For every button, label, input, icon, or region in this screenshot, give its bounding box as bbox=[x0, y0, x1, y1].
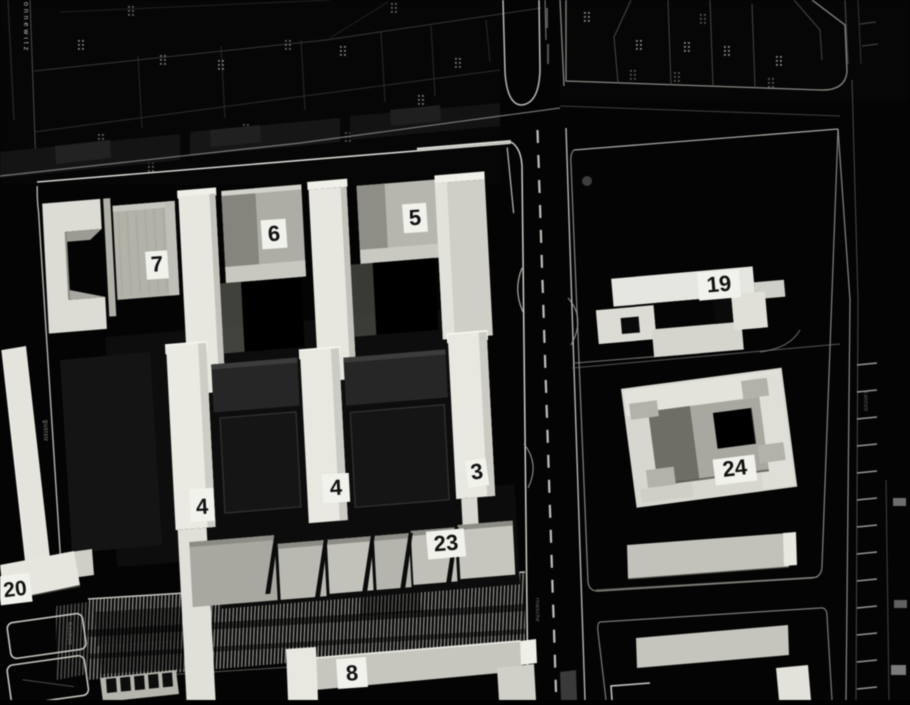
svg-text:19: 19 bbox=[706, 270, 733, 297]
svg-text:20: 20 bbox=[2, 577, 28, 603]
svg-text:5: 5 bbox=[408, 205, 422, 231]
svg-text:7: 7 bbox=[150, 251, 164, 277]
svg-text:4: 4 bbox=[195, 494, 209, 520]
svg-text:23: 23 bbox=[433, 529, 460, 556]
svg-text:6: 6 bbox=[267, 221, 281, 247]
svg-text:Kochstr: Kochstr bbox=[66, 622, 72, 645]
svg-text:4: 4 bbox=[329, 475, 343, 501]
svg-text:8: 8 bbox=[345, 660, 359, 686]
svg-text:o n n e w i t z: o n n e w i t z bbox=[22, 2, 29, 51]
svg-text:guststr: guststr bbox=[42, 420, 48, 442]
svg-text:Kantstr: Kantstr bbox=[862, 390, 868, 412]
svg-text:rnaische: rnaische bbox=[534, 598, 540, 622]
svg-text:24: 24 bbox=[721, 454, 749, 482]
